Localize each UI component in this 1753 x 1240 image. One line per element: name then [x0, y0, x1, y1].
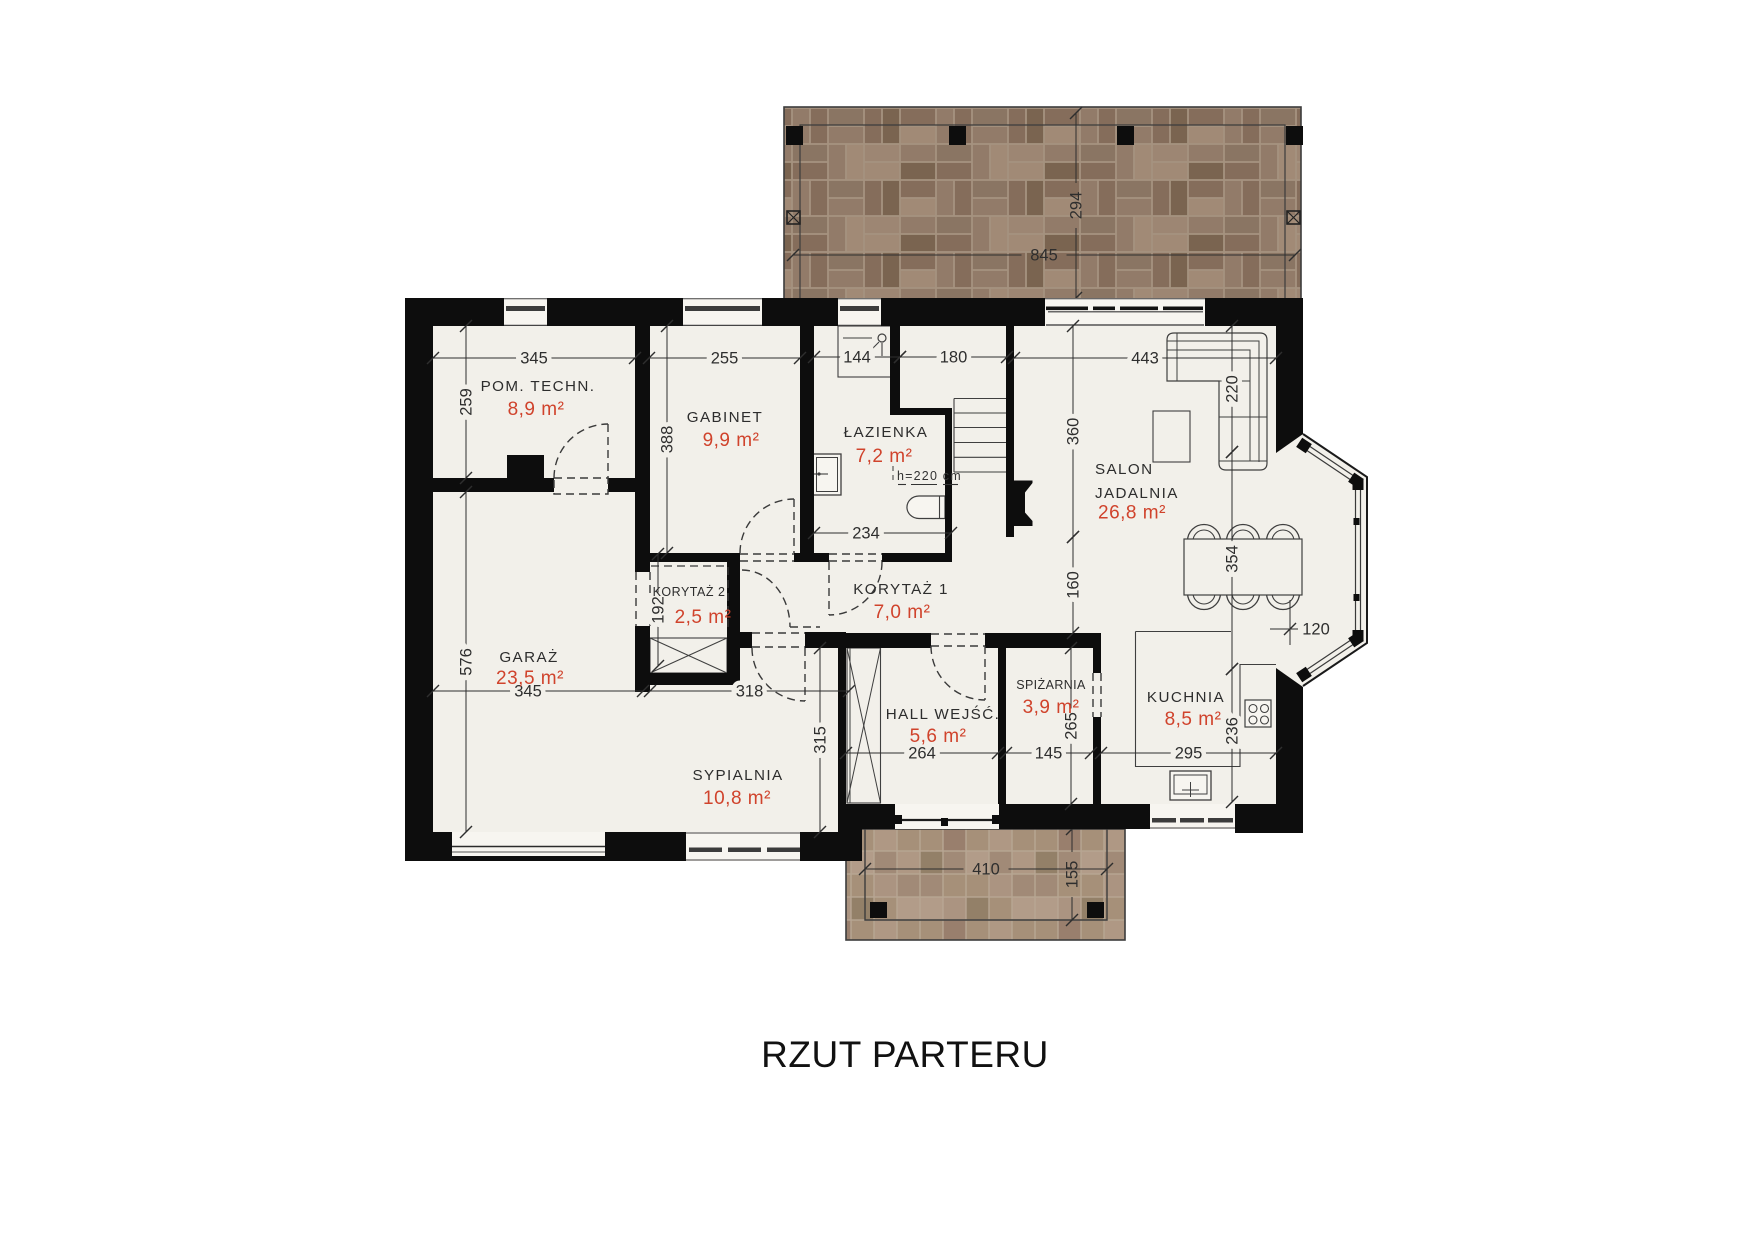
- svg-text:295: 295: [1175, 745, 1203, 763]
- svg-text:26,8 m²: 26,8 m²: [1098, 503, 1166, 524]
- svg-text:345: 345: [520, 350, 548, 368]
- svg-text:2,5 m²: 2,5 m²: [675, 607, 732, 628]
- svg-text:160: 160: [1065, 571, 1083, 599]
- svg-text:236: 236: [1224, 717, 1242, 745]
- svg-text:315: 315: [812, 726, 830, 754]
- svg-text:5,6 m²: 5,6 m²: [910, 726, 967, 747]
- svg-text:10,8 m²: 10,8 m²: [703, 788, 771, 809]
- svg-text:8,9 m²: 8,9 m²: [508, 399, 565, 420]
- svg-text:155: 155: [1064, 861, 1082, 889]
- svg-text:192: 192: [650, 596, 668, 624]
- svg-text:845: 845: [1030, 247, 1058, 265]
- svg-text:360: 360: [1065, 418, 1083, 446]
- svg-text:KORYTAŻ 1: KORYTAŻ 1: [853, 580, 949, 598]
- svg-text:410: 410: [972, 861, 1000, 879]
- svg-text:SYPIALNIA: SYPIALNIA: [692, 767, 783, 784]
- svg-text:3,9 m²: 3,9 m²: [1023, 697, 1080, 718]
- svg-text:354: 354: [1224, 545, 1242, 573]
- svg-text:SPIŻARNIA: SPIŻARNIA: [1016, 678, 1086, 692]
- svg-text:264: 264: [908, 745, 936, 763]
- svg-text:JADALNIA: JADALNIA: [1095, 485, 1179, 502]
- svg-text:8,5 m²: 8,5 m²: [1165, 709, 1222, 730]
- svg-text:SALON: SALON: [1095, 461, 1154, 478]
- svg-text:GABINET: GABINET: [687, 409, 763, 426]
- svg-text:259: 259: [458, 388, 476, 416]
- svg-text:POM. TECHN.: POM. TECHN.: [481, 378, 596, 395]
- svg-text:7,0 m²: 7,0 m²: [874, 602, 931, 623]
- svg-text:GARAŻ: GARAŻ: [499, 648, 558, 666]
- svg-text:294: 294: [1068, 192, 1086, 220]
- svg-text:180: 180: [940, 349, 968, 367]
- svg-text:443: 443: [1131, 350, 1159, 368]
- svg-text:144: 144: [843, 349, 871, 367]
- svg-text:RZUT PARTERU: RZUT PARTERU: [761, 1034, 1049, 1075]
- svg-text:388: 388: [659, 426, 677, 454]
- svg-text:255: 255: [711, 350, 739, 368]
- svg-text:9,9 m²: 9,9 m²: [703, 430, 760, 451]
- svg-text:KUCHNIA: KUCHNIA: [1147, 689, 1225, 706]
- svg-text:220: 220: [1224, 375, 1242, 403]
- svg-text:120: 120: [1302, 621, 1330, 639]
- svg-text:23,5 m²: 23,5 m²: [496, 668, 564, 689]
- svg-text:318: 318: [736, 683, 764, 701]
- svg-text:145: 145: [1035, 745, 1063, 763]
- svg-text:7,2 m²: 7,2 m²: [856, 446, 913, 467]
- svg-text:h=220 cm: h=220 cm: [897, 469, 962, 483]
- svg-text:234: 234: [852, 525, 880, 543]
- svg-text:ŁAZIENKA: ŁAZIENKA: [844, 424, 929, 441]
- svg-text:KORYTAŻ 2: KORYTAŻ 2: [653, 585, 726, 599]
- svg-text:HALL WEJŚĆ.: HALL WEJŚĆ.: [886, 705, 1000, 723]
- svg-text:576: 576: [458, 648, 476, 676]
